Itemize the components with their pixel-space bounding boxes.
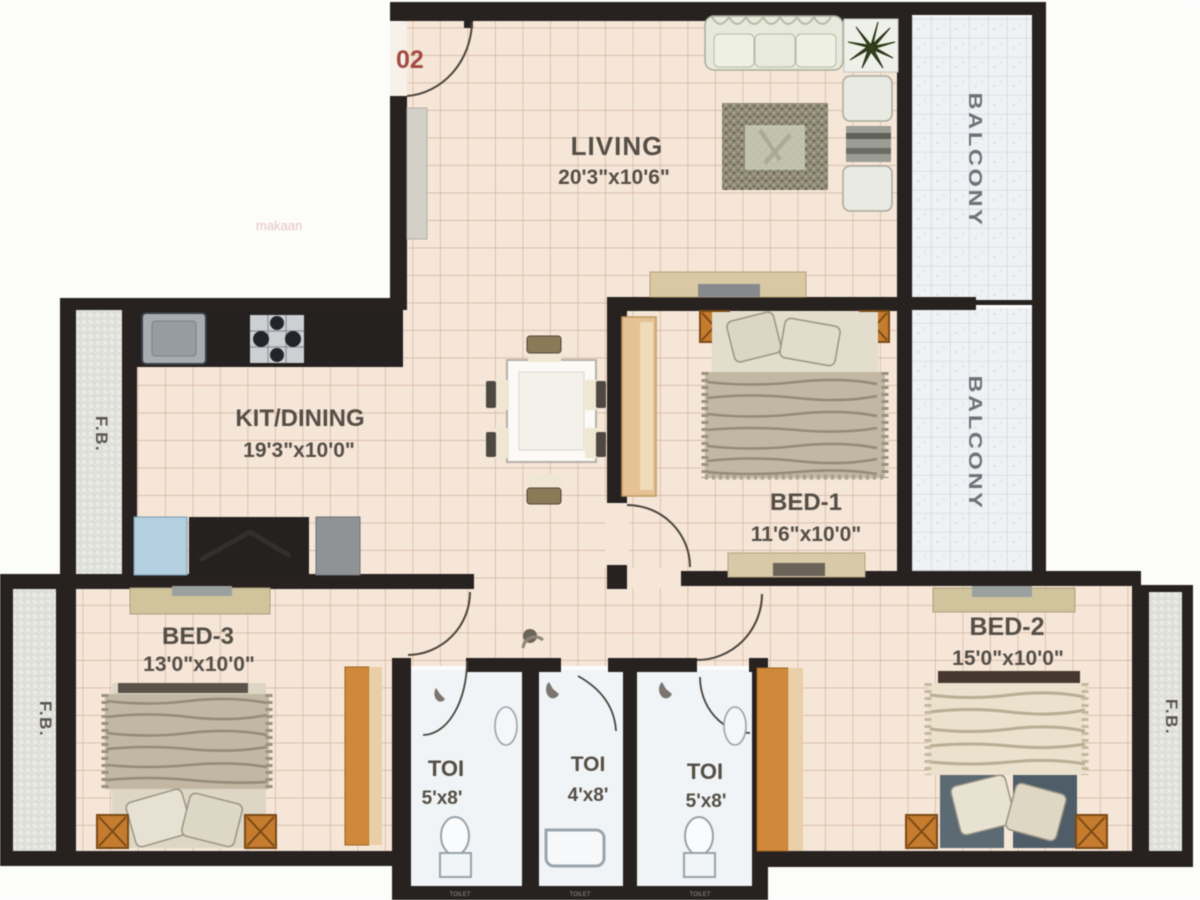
svg-text:BED-1: BED-1 (770, 489, 842, 516)
svg-text:20'3"x10'6": 20'3"x10'6" (558, 166, 670, 189)
svg-text:15'0"x10'0": 15'0"x10'0" (952, 647, 1064, 670)
svg-text:TOILET: TOILET (450, 892, 471, 898)
svg-text:F.B.: F.B. (36, 701, 55, 737)
svg-text:4'x8': 4'x8' (568, 785, 609, 806)
svg-text:11'6"x10'0": 11'6"x10'0" (751, 523, 862, 546)
svg-text:5'x8': 5'x8' (422, 788, 463, 809)
svg-text:F.B.: F.B. (1162, 699, 1181, 735)
svg-text:02: 02 (396, 46, 424, 74)
svg-text:BALCONY: BALCONY (965, 93, 985, 228)
svg-text:makaan: makaan (256, 218, 302, 233)
svg-text:13'0"x10'0": 13'0"x10'0" (143, 653, 255, 676)
svg-text:TOI: TOI (571, 753, 606, 776)
svg-text:F.B.: F.B. (92, 416, 111, 452)
svg-text:BALCONY: BALCONY (965, 376, 985, 511)
svg-text:BED-2: BED-2 (969, 613, 1044, 641)
svg-text:TOILET: TOILET (570, 892, 591, 898)
svg-text:KIT/DINING: KIT/DINING (235, 405, 364, 432)
svg-text:5'x8': 5'x8' (686, 791, 727, 812)
svg-text:BED-3: BED-3 (162, 623, 234, 650)
svg-text:19'3"x10'0": 19'3"x10'0" (243, 439, 355, 462)
svg-text:TOI: TOI (428, 756, 464, 781)
svg-text:TOILET: TOILET (690, 892, 711, 898)
svg-text:TOI: TOI (687, 759, 723, 784)
svg-text:LIVING: LIVING (571, 131, 664, 161)
